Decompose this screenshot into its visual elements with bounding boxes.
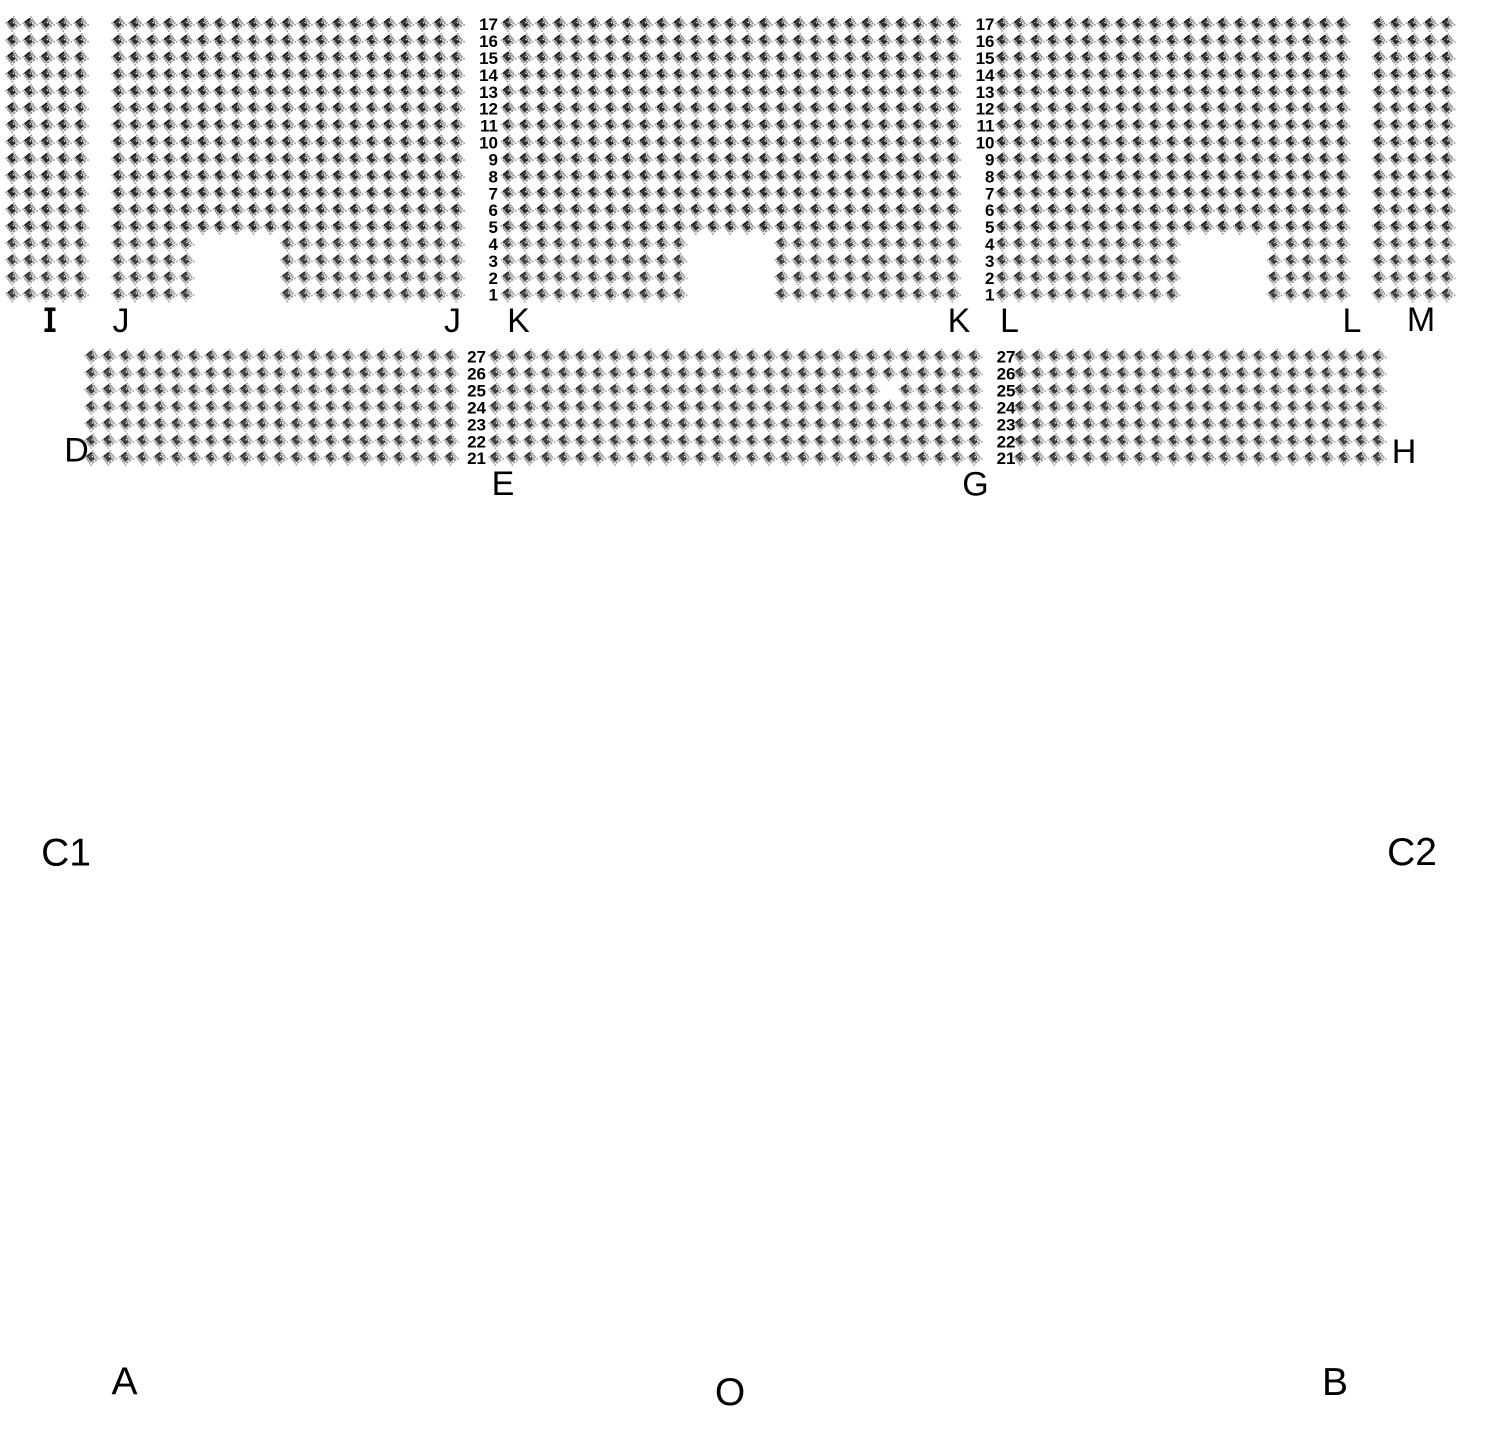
svg-text:21: 21 bbox=[467, 449, 486, 468]
svg-text:A: A bbox=[111, 1361, 137, 1404]
svg-text:H: H bbox=[1392, 433, 1417, 471]
svg-text:L: L bbox=[1343, 302, 1362, 340]
svg-text:21: 21 bbox=[997, 449, 1016, 468]
svg-text:K: K bbox=[507, 302, 530, 340]
svg-text:L: L bbox=[1000, 302, 1019, 340]
svg-text:1: 1 bbox=[489, 286, 498, 305]
svg-text:M: M bbox=[1407, 301, 1435, 339]
svg-text:D: D bbox=[64, 432, 89, 470]
svg-text:J: J bbox=[113, 302, 130, 340]
svg-text:B: B bbox=[1322, 1361, 1348, 1404]
svg-text:E: E bbox=[492, 465, 515, 503]
svg-text:G: G bbox=[962, 466, 988, 504]
svg-text:1: 1 bbox=[985, 286, 994, 305]
svg-text:O: O bbox=[715, 1371, 745, 1414]
svg-text:C2: C2 bbox=[1387, 831, 1437, 874]
svg-text:C1: C1 bbox=[41, 832, 91, 875]
svg-text:K: K bbox=[948, 302, 971, 340]
svg-text:J: J bbox=[444, 302, 461, 340]
